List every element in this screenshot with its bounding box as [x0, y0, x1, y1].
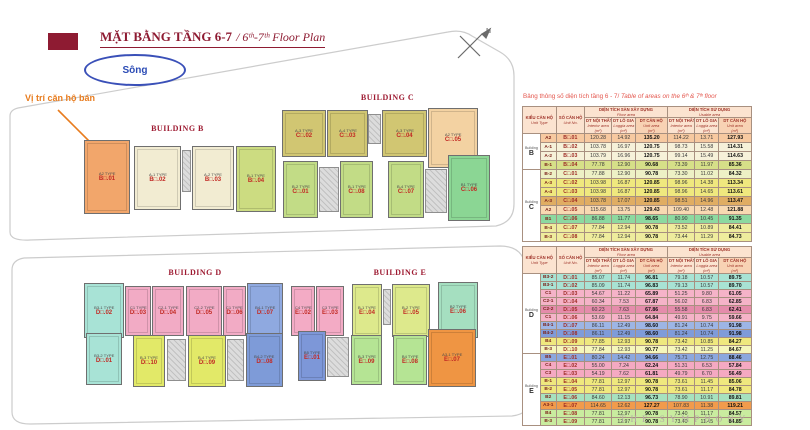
area-value-cell: 10.91 — [695, 394, 719, 402]
area-value-cell: 77.84 — [584, 346, 611, 354]
unit-type-label: C4 TYPE — [295, 305, 312, 310]
area-value-cell: 77.81 — [584, 418, 611, 426]
unit-type-cell: B4-1 — [540, 322, 556, 330]
area-value-cell: 99.14 — [667, 152, 694, 161]
table-row-C□.08: B-3C□.0877.8412.9490.7873.4411.2984.73 — [523, 233, 752, 242]
area-value-cell: 98.51 — [667, 197, 694, 206]
core-block — [368, 114, 381, 144]
unit-no-cell: D□.09 — [556, 338, 584, 346]
unit-number: C□.05 — [445, 137, 461, 144]
area-value-cell: 77.88 — [584, 170, 611, 179]
col-header-usable-area: DIỆN TÍCH SỬ DỤNGUsable area — [667, 107, 751, 118]
area-value-cell: 84.67 — [719, 346, 752, 354]
area-value-cell: 62.41 — [719, 306, 752, 314]
area-value-cell: 113.47 — [719, 197, 752, 206]
area-value-cell: 84.27 — [719, 338, 752, 346]
table-row-D□.04: C2-1D□.0460.347.5367.8756.026.8362.85 — [523, 298, 752, 306]
building-cell: BuildingB — [523, 134, 541, 170]
col-header-floor-area: DIỆN TÍCH SÀN XÂY DỰNGFloor area — [584, 107, 667, 118]
col-header-unit-area: DT CĂN HỘUnit area(m²) — [719, 258, 752, 274]
area-value-cell: 6.70 — [695, 370, 719, 378]
building-cell: BuildingC — [523, 170, 541, 242]
unit-number: E□.05 — [403, 310, 419, 317]
sale-location-note: Vị trí căn hộ bán — [25, 93, 95, 103]
area-value-cell: 11.17 — [695, 386, 719, 394]
area-value-cell: 114.31 — [719, 143, 752, 152]
area-value-cell: 7.63 — [612, 306, 636, 314]
area-value-cell: 86.11 — [584, 330, 611, 338]
area-value-cell: 77.81 — [584, 410, 611, 418]
unit-type-cell: A2 — [540, 134, 556, 143]
unit-type-cell: A-3 — [540, 179, 556, 188]
area-value-cell: 10.85 — [695, 338, 719, 346]
area-value-cell: 119.21 — [719, 402, 752, 410]
unit-type-cell: B-2 — [540, 170, 556, 179]
area-value-cell: 12.75 — [695, 354, 719, 362]
table-row-E□.07: A3-1E□.07114.6512.62127.27107.8311.38119… — [523, 402, 752, 410]
unit-type-label: B-1 TYPE — [348, 184, 366, 189]
unit-type-cell: B4 — [540, 338, 556, 346]
col-header-loggia: DT LÔ GIALoggia area(m²) — [695, 258, 719, 274]
unit-type-cell: A-1 — [540, 143, 556, 152]
col-header-loggia: DT LÔ GIALoggia area(m²) — [612, 118, 636, 134]
col-header-unit-area: DT CĂN HỘUnit area(m²) — [636, 118, 668, 134]
area-value-cell: 16.87 — [612, 179, 636, 188]
area-value-cell: 54.19 — [584, 370, 611, 378]
plan-unit-d08: B4-2 TYPE D□.08 — [246, 333, 283, 387]
col-header-interior: DT NỘI THẤTInterior area(m²) — [584, 118, 611, 134]
plan-unit-c07: B-4 TYPE C□.07 — [388, 161, 424, 218]
area-value-cell: 75.71 — [667, 354, 694, 362]
table-row-C□.03: A-4C□.03103.9816.87120.8598.9614.65113.6… — [523, 188, 752, 197]
area-value-cell: 98.73 — [667, 143, 694, 152]
area-value-cell: 127.27 — [636, 402, 668, 410]
unit-type-cell: B-3 — [540, 346, 556, 354]
unit-no-cell: C□.04 — [556, 197, 584, 206]
area-value-cell: 98.96 — [667, 188, 694, 197]
unit-type-label: B-3 TYPE — [140, 355, 158, 360]
area-value-cell: 12.49 — [612, 322, 636, 330]
area-value-cell: 96.83 — [636, 282, 668, 290]
area-value-cell: 11.74 — [612, 282, 636, 290]
area-value-cell: 56.49 — [719, 370, 752, 378]
page-title-en: / 6ᵗʰ-7ᵗʰ Floor Plan — [236, 30, 325, 44]
table-row-B□.01: BuildingBA2B□.01120.2814.92135.20114.221… — [523, 134, 752, 143]
area-value-cell: 60.23 — [584, 306, 611, 314]
unit-number: C□.07 — [398, 189, 414, 196]
unit-type-cell: C4 — [540, 362, 556, 370]
unit-no-cell: E□.07 — [556, 402, 584, 410]
unit-number: D□.09 — [199, 360, 215, 367]
river-callout: Sông — [84, 54, 186, 86]
legend-square — [48, 33, 78, 50]
col-header-unit-area: DT CĂN HỘUnit area(m²) — [636, 258, 668, 274]
unit-number: C□.08 — [348, 189, 364, 196]
unit-type-cell: B-1 — [540, 378, 556, 386]
unit-type-label: B-2 TYPE — [402, 305, 420, 310]
area-value-cell: 55.58 — [667, 306, 694, 314]
area-value-cell: 77.78 — [584, 161, 611, 170]
area-value-cell: 127.93 — [719, 134, 752, 143]
unit-type-label: C1 TYPE — [226, 305, 243, 310]
area-value-cell: 88.46 — [719, 354, 752, 362]
area-value-cell: 10.89 — [695, 224, 719, 233]
unit-type-cell: A-4 — [540, 188, 556, 197]
plan-unit-b01: A2 TYPE B□.01 — [84, 140, 130, 214]
unit-number: D□.03 — [130, 310, 146, 317]
unit-type-cell: A2 — [540, 206, 556, 215]
area-value-cell: 77.84 — [584, 233, 611, 242]
col-header-usable-area: DIỆN TÍCH SỬ DỤNGUsable area — [667, 247, 751, 258]
plan-unit-c08: B-1 TYPE C□.08 — [340, 161, 373, 218]
area-value-cell: 91.35 — [719, 215, 752, 224]
area-value-cell: 98.96 — [667, 179, 694, 188]
plan-unit-d09: B-4 TYPE D□.09 — [188, 335, 226, 387]
plan-unit-c03: A-4 TYPE C□.03 — [327, 110, 368, 157]
unit-number: E□.02 — [295, 310, 311, 317]
table-caption-en: Table of areas on the 6ᵗʰ & 7ᵗʰ floor — [621, 93, 717, 100]
col-header-unit-area: DT CĂN HỘUnit area(m²) — [719, 118, 752, 134]
area-value-cell: 84.73 — [719, 233, 752, 242]
unit-type-cell: B1 — [540, 215, 556, 224]
area-value-cell: 14.96 — [695, 197, 719, 206]
table-row-D□.09: B4D□.0977.8512.9390.7873.4210.8584.27 — [523, 338, 752, 346]
unit-type-cell: B-1 — [540, 161, 556, 170]
unit-type-cell: C1 — [540, 290, 556, 298]
unit-type-cell: C2-1 — [540, 298, 556, 306]
unit-number: E□.09 — [359, 359, 375, 366]
area-value-cell: 120.85 — [636, 188, 668, 197]
table-row-E□.01: BuildingEB5E□.0180.2414.4294.6675.7112.7… — [523, 354, 752, 362]
unit-type-cell: C1 — [540, 314, 556, 322]
unit-type-label: C1 TYPE — [130, 305, 147, 310]
unit-type-cell: B5 — [540, 354, 556, 362]
unit-type-label: B2 TYPE — [450, 304, 467, 309]
area-value-cell: 80.24 — [584, 354, 611, 362]
area-value-cell: 12.90 — [612, 170, 636, 179]
core-block — [327, 337, 349, 377]
unit-type-label: B4-2 TYPE — [254, 354, 274, 359]
plan-unit-d06: C1 TYPE D□.06 — [223, 286, 246, 336]
area-value-cell: 129.43 — [636, 206, 668, 215]
unit-no-cell: C□.06 — [556, 215, 584, 224]
table-row-B□.02: A-1B□.02103.7816.97120.7598.7315.58114.3… — [523, 143, 752, 152]
area-value-cell: 81.24 — [667, 330, 694, 338]
area-value-cell: 12.94 — [612, 224, 636, 233]
building-d-label: BUILDING D — [150, 268, 240, 277]
unit-no-cell: D□.01 — [556, 274, 584, 282]
area-value-cell: 11.77 — [612, 215, 636, 224]
area-value-cell: 85.06 — [719, 378, 752, 386]
area-value-cell: 90.77 — [636, 346, 668, 354]
area-value-cell: 73.61 — [667, 386, 694, 394]
area-value-cell: 12.49 — [612, 330, 636, 338]
area-value-cell: 103.98 — [584, 179, 611, 188]
unit-no-cell: E□.05 — [556, 386, 584, 394]
area-value-cell: 84.32 — [719, 170, 752, 179]
area-value-cell: 62.24 — [636, 362, 668, 370]
plan-unit-d01: B3-2 TYPE D□.01 — [86, 333, 122, 385]
area-value-cell: 103.79 — [584, 152, 611, 161]
area-value-cell: 12.13 — [612, 394, 636, 402]
plan-unit-b04: B-1 TYPE B□.04 — [236, 146, 276, 212]
unit-number: D□.02 — [96, 310, 112, 317]
area-value-cell: 98.65 — [636, 215, 668, 224]
unit-no-cell: D□.08 — [556, 330, 584, 338]
area-value-cell: 91.98 — [719, 330, 752, 338]
area-value-cell: 90.78 — [636, 378, 668, 386]
area-value-cell: 73.30 — [667, 170, 694, 179]
table-row-C□.07: B-4C□.0777.8412.9490.7873.5210.8984.41 — [523, 224, 752, 233]
unit-no-cell: C□.01 — [556, 170, 584, 179]
unit-no-cell: D□.05 — [556, 306, 584, 314]
plan-unit-e09: B-3 TYPE E□.09 — [351, 335, 382, 385]
unit-no-cell: E□.09 — [556, 418, 584, 426]
unit-type-cell: B3-2 — [540, 274, 556, 282]
table-row-E□.06: B2E□.0684.6012.1396.7378.9010.9189.81 — [523, 394, 752, 402]
area-value-cell: 15.49 — [695, 152, 719, 161]
area-value-cell: 14.42 — [612, 354, 636, 362]
col-header-unit-no: SỐ CĂN HỘUnit No. — [556, 107, 584, 134]
col-header-interior: DT NỘI THẤTInterior area(m²) — [667, 118, 694, 134]
core-block — [425, 169, 447, 213]
area-value-cell: 14.92 — [612, 134, 636, 143]
unit-type-cell: A-2 — [540, 152, 556, 161]
area-value-cell: 12.90 — [612, 161, 636, 170]
area-value-cell: 11.22 — [612, 290, 636, 298]
plan-unit-e05: B-2 TYPE E□.05 — [392, 284, 430, 337]
unit-number: E□.06 — [450, 309, 466, 316]
area-value-cell: 80.90 — [667, 215, 694, 224]
area-value-cell: 10.57 — [695, 274, 719, 282]
area-value-cell: 12.93 — [612, 346, 636, 354]
area-value-cell: 79.13 — [667, 282, 694, 290]
plan-unit-e07: A3-1 TYPE E□.07 — [428, 329, 476, 387]
unit-number: D□.07 — [257, 310, 273, 317]
unit-number: B□.02 — [149, 177, 165, 184]
area-value-cell: 6.83 — [695, 298, 719, 306]
unit-no-cell: C□.03 — [556, 188, 584, 197]
area-value-cell: 90.78 — [636, 170, 668, 179]
unit-no-cell: C□.08 — [556, 233, 584, 242]
plan-unit-d07: B4-1 TYPE D□.07 — [247, 283, 283, 338]
plan-unit-d03: C1 TYPE D□.03 — [125, 286, 151, 336]
area-value-cell: 12.93 — [612, 338, 636, 346]
area-value-cell: 16.87 — [612, 188, 636, 197]
area-value-cell: 120.75 — [636, 152, 668, 161]
unit-type-label: A3-1 TYPE — [442, 352, 462, 357]
unit-number: E□.08 — [402, 359, 418, 366]
plan-unit-e03: C3 TYPE E□.03 — [316, 286, 344, 336]
area-value-cell: 11.29 — [695, 233, 719, 242]
area-value-cell: 49.91 — [667, 314, 694, 322]
area-value-cell: 89.75 — [719, 274, 752, 282]
area-value-cell: 51.31 — [667, 362, 694, 370]
col-header-interior: DT NỘI THẤTInterior area(m²) — [667, 258, 694, 274]
area-value-cell: 12.48 — [695, 206, 719, 215]
unit-no-cell: E□.02 — [556, 362, 584, 370]
unit-type-cell: B4 — [540, 410, 556, 418]
building-cell: BuildingD — [523, 274, 541, 354]
unit-type-label: A-4 TYPE — [339, 128, 357, 133]
building-cell: BuildingE — [523, 354, 541, 426]
area-value-cell: 54.67 — [584, 290, 611, 298]
unit-number: E□.04 — [359, 310, 375, 317]
area-value-cell: 90.78 — [636, 338, 668, 346]
area-value-cell: 9.80 — [695, 290, 719, 298]
area-value-cell: 11.45 — [695, 378, 719, 386]
unit-type-label: B4-1 TYPE — [255, 305, 275, 310]
unit-no-cell: E□.04 — [556, 378, 584, 386]
area-value-cell: 120.85 — [636, 197, 668, 206]
unit-type-label: A-2 TYPE — [204, 172, 222, 177]
area-value-cell: 17.07 — [612, 197, 636, 206]
table-row-D□.02: B3-1D□.0285.0911.7496.8379.1310.5789.70 — [523, 282, 752, 290]
unit-type-cell: B-4 — [540, 224, 556, 233]
area-value-cell: 85.36 — [719, 161, 752, 170]
area-value-cell: 10.45 — [695, 215, 719, 224]
area-value-cell: 14.65 — [695, 188, 719, 197]
unit-type-label: B-4 TYPE — [397, 184, 415, 189]
core-block — [227, 339, 244, 381]
unit-number: E□.03 — [322, 310, 338, 317]
table-row-D□.07: B4-1D□.0786.1112.4998.6081.2410.7491.98 — [523, 322, 752, 330]
unit-type-label: A-3 TYPE — [396, 128, 414, 133]
core-block — [319, 167, 339, 212]
area-value-cell: 90.68 — [636, 161, 668, 170]
area-value-cell: 77.85 — [584, 338, 611, 346]
unit-type-cell: B-3 — [540, 418, 556, 426]
unit-number: C□.02 — [296, 133, 312, 140]
area-value-cell: 84.78 — [719, 386, 752, 394]
area-value-cell: 11.74 — [612, 274, 636, 282]
area-value-cell: 77.84 — [584, 224, 611, 233]
area-value-cell: 65.89 — [636, 290, 668, 298]
table-row-C□.05: A2C□.05115.6813.75129.43109.4012.48121.8… — [523, 206, 752, 215]
unit-type-label: B-1 TYPE — [358, 305, 376, 310]
unit-number: D□.04 — [160, 310, 176, 317]
plan-unit-e08: B4 TYPE E□.08 — [393, 335, 427, 385]
building-b-label: BUILDING B — [130, 124, 225, 133]
unit-type-cell: A3-1 — [540, 402, 556, 410]
area-value-cell: 11.15 — [612, 314, 636, 322]
area-value-cell: 49.79 — [667, 370, 694, 378]
area-value-cell: 11.97 — [695, 161, 719, 170]
compass-north-label: N — [486, 28, 491, 35]
area-value-cell: 14.38 — [695, 179, 719, 188]
col-header-unit-no: SỐ CĂN HỘUnit No. — [556, 247, 584, 274]
area-value-cell: 7.53 — [612, 298, 636, 306]
table-row-E□.03: C3E□.0354.197.6261.8149.796.7056.49 — [523, 370, 752, 378]
building-e-label: BUILDING E — [355, 268, 445, 277]
area-value-cell: 109.40 — [667, 206, 694, 215]
area-value-cell: 78.90 — [667, 394, 694, 402]
col-header-unit-type: KIỂU CĂN HỘUnit Type — [523, 247, 557, 274]
areas-table-bc: KIỂU CĂN HỘUnit Type SỐ CĂN HỘUnit No. D… — [522, 106, 752, 242]
plan-unit-c06: B1 TYPE C□.06 — [448, 155, 490, 221]
area-value-cell: 73.52 — [667, 224, 694, 233]
building-c-label: BUILDING C — [340, 93, 435, 102]
plan-unit-b02: A-1 TYPE B□.02 — [134, 146, 181, 210]
unit-number: B□.04 — [248, 178, 264, 185]
plan-unit-d04: C2-1 TYPE D□.04 — [152, 286, 184, 336]
area-value-cell: 67.87 — [636, 298, 668, 306]
area-value-cell: 115.68 — [584, 206, 611, 215]
area-value-cell: 61.81 — [636, 370, 668, 378]
area-value-cell: 73.44 — [667, 233, 694, 242]
unit-no-cell: D□.02 — [556, 282, 584, 290]
core-block — [167, 339, 186, 381]
plan-unit-c01: B-2 TYPE C□.01 — [283, 161, 318, 218]
unit-type-cell: B3-1 — [540, 282, 556, 290]
table-row-D□.08: B4-2D□.0886.1112.4998.6081.2410.7491.98 — [523, 330, 752, 338]
plan-unit-d10: B-3 TYPE D□.10 — [133, 335, 165, 387]
unit-no-cell: B□.03 — [556, 152, 584, 161]
area-value-cell: 13.71 — [695, 134, 719, 143]
area-value-cell: 7.24 — [612, 362, 636, 370]
unit-no-cell: D□.07 — [556, 322, 584, 330]
river-label: Sông — [123, 65, 148, 76]
core-block — [182, 150, 191, 192]
unit-type-cell: A-3 — [540, 197, 556, 206]
area-value-cell: 56.02 — [667, 298, 694, 306]
area-value-cell: 94.66 — [636, 354, 668, 362]
area-value-cell: 79.18 — [667, 274, 694, 282]
table-row-D□.05: C2-2D□.0560.237.6367.8655.586.8362.41 — [523, 306, 752, 314]
unit-no-cell: C□.02 — [556, 179, 584, 188]
area-value-cell: 120.75 — [636, 143, 668, 152]
table-row-C□.01: BuildingCB-2C□.0177.8812.9090.7873.3011.… — [523, 170, 752, 179]
area-value-cell: 10.57 — [695, 282, 719, 290]
area-value-cell: 15.58 — [695, 143, 719, 152]
unit-no-cell: E□.08 — [556, 410, 584, 418]
area-value-cell: 9.75 — [695, 314, 719, 322]
unit-type-label: B1 TYPE — [461, 182, 478, 187]
area-value-cell: 10.74 — [695, 322, 719, 330]
table-row-C□.02: A-3C□.02103.9816.87120.8598.9614.38113.3… — [523, 179, 752, 188]
unit-no-cell: E□.01 — [556, 354, 584, 362]
area-value-cell: 59.66 — [719, 314, 752, 322]
area-value-cell: 11.25 — [695, 346, 719, 354]
area-value-cell: 73.61 — [667, 378, 694, 386]
area-value-cell: 13.75 — [612, 206, 636, 215]
area-value-cell: 12.62 — [612, 402, 636, 410]
area-value-cell: 114.65 — [584, 402, 611, 410]
plan-unit-d05: C2-2 TYPE D□.05 — [186, 286, 222, 336]
plan-unit-c02: A-3 TYPE C□.02 — [282, 110, 326, 157]
unit-no-cell: E□.03 — [556, 370, 584, 378]
area-value-cell: 98.60 — [636, 330, 668, 338]
area-value-cell: 89.81 — [719, 394, 752, 402]
unit-type-label: A2 TYPE — [99, 171, 116, 176]
unit-type-cell: B4-2 — [540, 330, 556, 338]
unit-no-cell: D□.06 — [556, 314, 584, 322]
core-block — [383, 289, 391, 325]
area-value-cell: 90.78 — [636, 233, 668, 242]
area-value-cell: 114.63 — [719, 152, 752, 161]
areas-table-de: KIỂU CĂN HỘUnit Type SỐ CĂN HỘUnit No. D… — [522, 246, 752, 426]
unit-no-cell: B□.04 — [556, 161, 584, 170]
area-value-cell: 16.96 — [612, 152, 636, 161]
unit-no-cell: B□.02 — [556, 143, 584, 152]
table-row-E□.05: B-2E□.0577.8112.9790.7873.6111.1784.78 — [523, 386, 752, 394]
area-value-cell: 77.81 — [584, 378, 611, 386]
area-value-cell: 103.78 — [584, 197, 611, 206]
area-value-cell: 90.78 — [636, 386, 668, 394]
area-value-cell: 64.84 — [636, 314, 668, 322]
unit-number: D□.10 — [141, 360, 157, 367]
col-header-interior: DT NỘI THẤTInterior area(m²) — [584, 258, 611, 274]
